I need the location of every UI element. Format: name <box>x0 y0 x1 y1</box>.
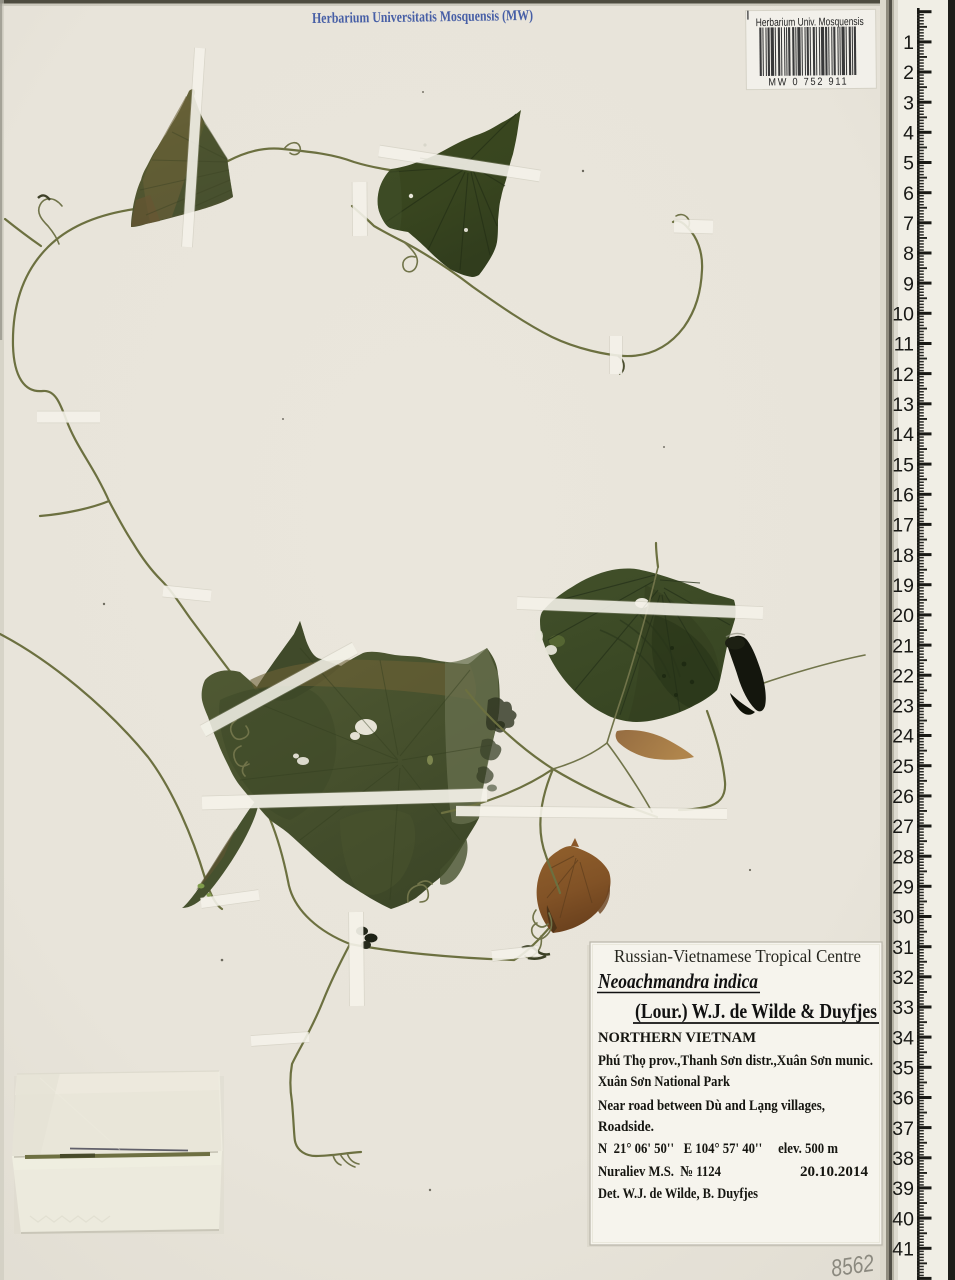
svg-text:6: 6 <box>903 183 914 205</box>
svg-text:28: 28 <box>892 846 914 868</box>
svg-text:32: 32 <box>892 967 914 989</box>
svg-text:20.10.2014: 20.10.2014 <box>800 1164 869 1180</box>
svg-text:5: 5 <box>903 153 914 175</box>
svg-text:9: 9 <box>903 273 914 295</box>
svg-text:Russian-Vietnamese Tropical Ce: Russian-Vietnamese Tropical Centre <box>614 946 861 966</box>
svg-text:13: 13 <box>892 394 914 416</box>
svg-text:30: 30 <box>892 907 914 929</box>
svg-text:19: 19 <box>892 575 914 597</box>
svg-text:39: 39 <box>892 1178 914 1200</box>
svg-text:24: 24 <box>892 726 914 748</box>
svg-text:MW 0 752 911: MW 0 752 911 <box>768 76 848 89</box>
svg-text:21: 21 <box>892 635 914 657</box>
svg-text:NORTHERN VIETNAM: NORTHERN VIETNAM <box>598 1030 756 1046</box>
svg-text:10: 10 <box>892 304 914 326</box>
svg-text:27: 27 <box>892 816 914 838</box>
svg-text:15: 15 <box>892 454 914 476</box>
svg-text:26: 26 <box>892 786 914 808</box>
svg-text:Neoachmandra indica: Neoachmandra indica <box>597 969 758 993</box>
svg-text:Roadside.: Roadside. <box>598 1119 654 1135</box>
svg-text:7: 7 <box>903 213 914 235</box>
svg-text:8: 8 <box>903 243 914 265</box>
svg-text:36: 36 <box>892 1088 914 1110</box>
svg-text:11: 11 <box>894 334 914 356</box>
svg-text:Herbarium Universitatis Mosque: Herbarium Universitatis Mosquensis (MW) <box>312 8 533 27</box>
svg-text:1: 1 <box>903 32 914 54</box>
svg-text:35: 35 <box>892 1058 914 1080</box>
svg-text:38: 38 <box>892 1148 914 1170</box>
svg-text:16: 16 <box>892 485 914 507</box>
svg-text:Near road between Dù and Lạng: Near road between Dù and Lạng villages, <box>598 1098 825 1114</box>
svg-text:Phú Thọ prov.,Thanh Sơn distr.: Phú Thọ prov.,Thanh Sơn distr.,Xuân Sơn … <box>598 1053 873 1069</box>
svg-text:2: 2 <box>903 62 914 84</box>
svg-text:20: 20 <box>892 605 914 627</box>
svg-text:12: 12 <box>892 364 914 386</box>
svg-text:33: 33 <box>892 997 914 1019</box>
svg-text:29: 29 <box>892 877 914 899</box>
svg-text:22: 22 <box>892 665 914 687</box>
svg-text:37: 37 <box>892 1118 914 1140</box>
svg-text:4: 4 <box>903 123 914 145</box>
svg-text:41: 41 <box>892 1239 914 1261</box>
svg-text:25: 25 <box>892 756 914 778</box>
svg-text:Xuân Sơn National Park: Xuân Sơn National Park <box>598 1074 731 1090</box>
svg-text:18: 18 <box>892 545 914 567</box>
svg-text:Nuraliev M.S. № 1124: Nuraliev M.S. № 1124 <box>598 1164 721 1180</box>
svg-text:31: 31 <box>892 937 914 959</box>
svg-text:Det. W.J. de Wilde, B. Duyfjes: Det. W.J. de Wilde, B. Duyfjes <box>598 1186 758 1202</box>
svg-text:34: 34 <box>892 1027 914 1049</box>
svg-text:N 21° 06' 50'' E 104° 57' 4: N 21° 06' 50'' E 104° 57' 40'' elev. 500… <box>598 1141 838 1157</box>
svg-text:17: 17 <box>892 515 914 537</box>
svg-text:14: 14 <box>892 424 914 446</box>
svg-text:23: 23 <box>892 696 914 718</box>
svg-text:8562: 8562 <box>829 1250 875 1280</box>
svg-text:3: 3 <box>903 92 914 114</box>
svg-text:(Lour.) W.J. de Wilde & Duyfje: (Lour.) W.J. de Wilde & Duyfjes <box>635 999 877 1023</box>
svg-text:40: 40 <box>892 1208 914 1230</box>
